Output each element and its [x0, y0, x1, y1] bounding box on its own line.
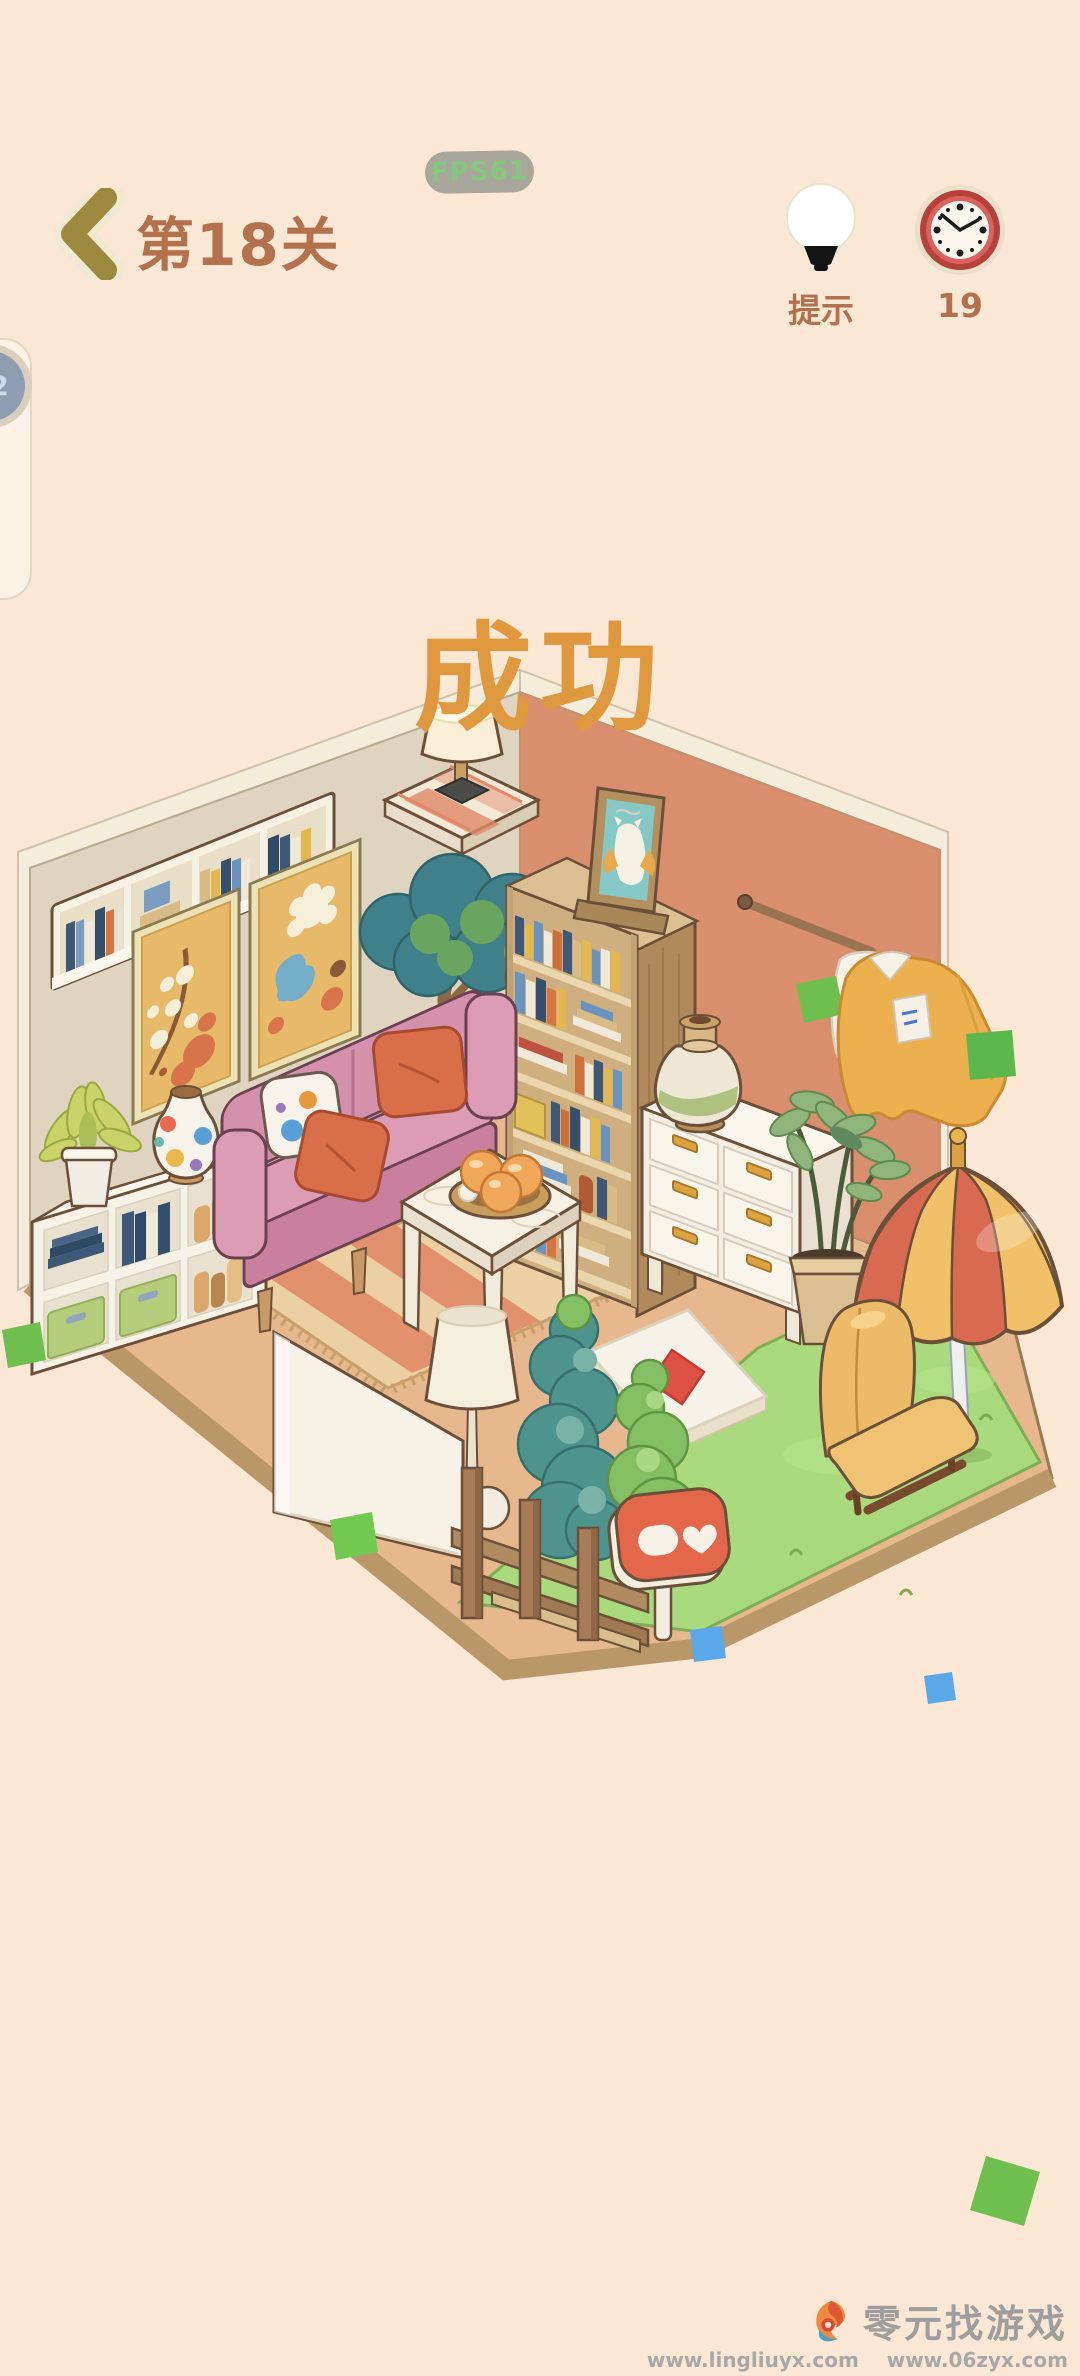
confetti-blue-1: [690, 1626, 726, 1662]
watermark-site-name: 零元找游戏: [863, 2293, 1068, 2348]
confetti-blue-2: [924, 1672, 956, 1704]
confetti-green-right: [966, 1030, 1016, 1080]
confetti-green-front: [330, 1512, 378, 1560]
fps-badge: FPS61: [425, 150, 535, 194]
room-scene-canvas[interactable]: [0, 0, 1080, 2376]
pillow-orange-back: [372, 1026, 468, 1119]
timer-button[interactable]: 19: [912, 184, 1008, 325]
watermark-logo-icon: [807, 2298, 853, 2344]
watermark-url-secondary: www.06zyx.com: [887, 2348, 1068, 2372]
back-button[interactable]: [54, 188, 124, 280]
side-float-badge: 22: [0, 344, 32, 428]
confetti-green-bottom: [970, 2156, 1040, 2226]
confetti-green-left: [2, 1322, 46, 1368]
game-screen: FPS61 第18关 提示: [0, 0, 1080, 2376]
hint-button[interactable]: 提示: [776, 178, 866, 332]
level-title: 第18关: [136, 198, 341, 282]
timer-count: 19: [912, 286, 1008, 325]
clothes-tag: [893, 994, 931, 1043]
fruit-bowl: [450, 1151, 550, 1218]
hint-label: 提示: [776, 284, 866, 332]
side-float-panel[interactable]: 22: [0, 338, 32, 600]
pillow-orange-front: [293, 1108, 392, 1204]
success-banner: 成功: [0, 620, 1080, 738]
lightbulb-icon: [778, 178, 864, 278]
watermark: 零元找游戏 www.lingliuyx.com www.06zyx.com: [647, 2293, 1068, 2372]
clock-icon: [912, 184, 1008, 280]
watermark-url-primary: www.lingliuyx.com: [647, 2348, 859, 2372]
